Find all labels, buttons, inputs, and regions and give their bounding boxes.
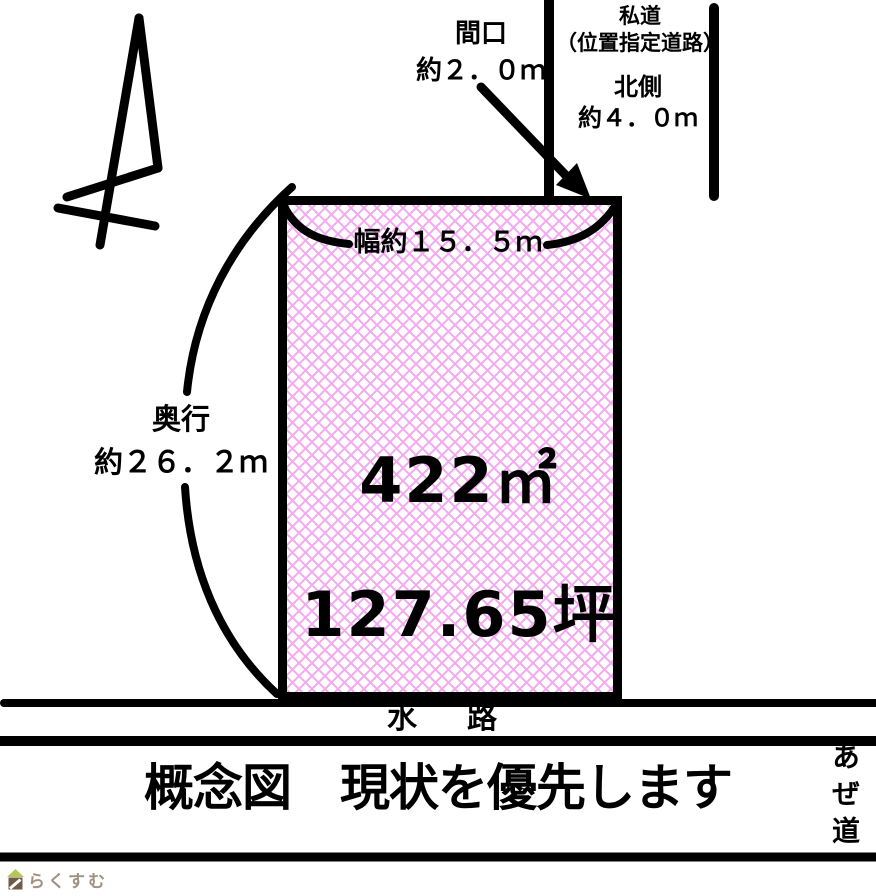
width-dimension-label: 幅約１５．５ｍ [328, 227, 568, 258]
footpath-label: あぜ道 [828, 742, 864, 862]
north-arrow-sketch [58, 18, 158, 245]
frontage-label: 間口 約２．０ｍ [401, 16, 561, 90]
waterway-label: 水 路 [347, 703, 547, 735]
land-plot-diagram: 間口 約２．０ｍ 私道 （位置指定道路） 北側 約４．０ｍ 幅約１５．５ｍ 奥行… [0, 0, 876, 896]
logo-text: らくすむ [28, 867, 108, 892]
rakusumu-logo: らくすむ [7, 867, 108, 892]
plot-area-label: 422㎡ 127.65坪 [259, 380, 659, 715]
area-tsubo-value: 127.65坪 [259, 581, 659, 648]
north-side-label: 北側 約４．０ｍ [543, 72, 733, 134]
caption-text: 概念図 現状を優先します [98, 759, 778, 817]
depth-dim-arc-upper [187, 187, 292, 392]
area-m2-value: 422㎡ [259, 447, 659, 514]
private-road-label: 私道 （位置指定道路） [545, 3, 735, 57]
house-icon [7, 869, 24, 890]
